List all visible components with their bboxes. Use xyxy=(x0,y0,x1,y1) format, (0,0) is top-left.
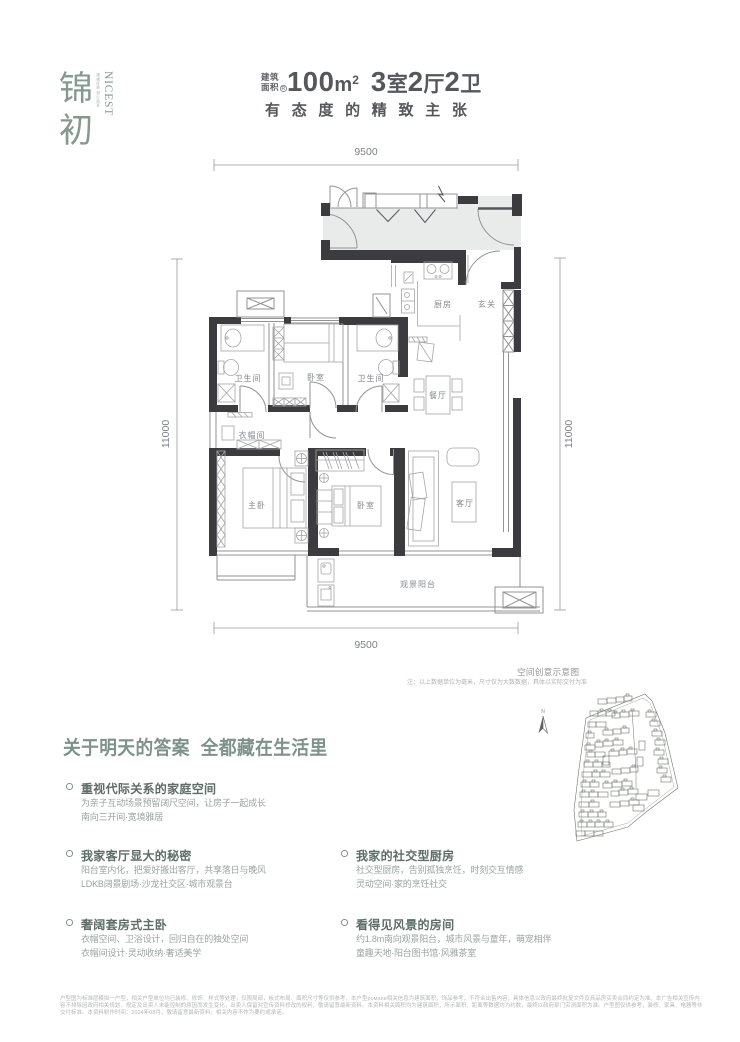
svg-text:卫生间: 卫生间 xyxy=(235,373,262,383)
svg-text:卧室: 卧室 xyxy=(357,500,375,510)
svg-text:主卧: 主卧 xyxy=(248,500,266,510)
svg-text:客厅: 客厅 xyxy=(456,498,474,508)
svg-text:衣帽间: 衣帽间 xyxy=(239,430,266,440)
svg-text:卫生间: 卫生间 xyxy=(358,373,385,383)
svg-text:餐厅: 餐厅 xyxy=(429,391,447,400)
svg-text:11000: 11000 xyxy=(563,420,575,449)
svg-text:厨房: 厨房 xyxy=(434,299,452,309)
svg-text:观景阳台: 观景阳台 xyxy=(400,579,436,589)
svg-text:11000: 11000 xyxy=(160,420,172,449)
svg-text:玄关: 玄关 xyxy=(478,299,496,309)
svg-text:卧室: 卧室 xyxy=(307,372,325,382)
svg-text:9500: 9500 xyxy=(354,639,378,651)
svg-text:N: N xyxy=(541,709,545,715)
svg-text:9500: 9500 xyxy=(354,146,378,158)
